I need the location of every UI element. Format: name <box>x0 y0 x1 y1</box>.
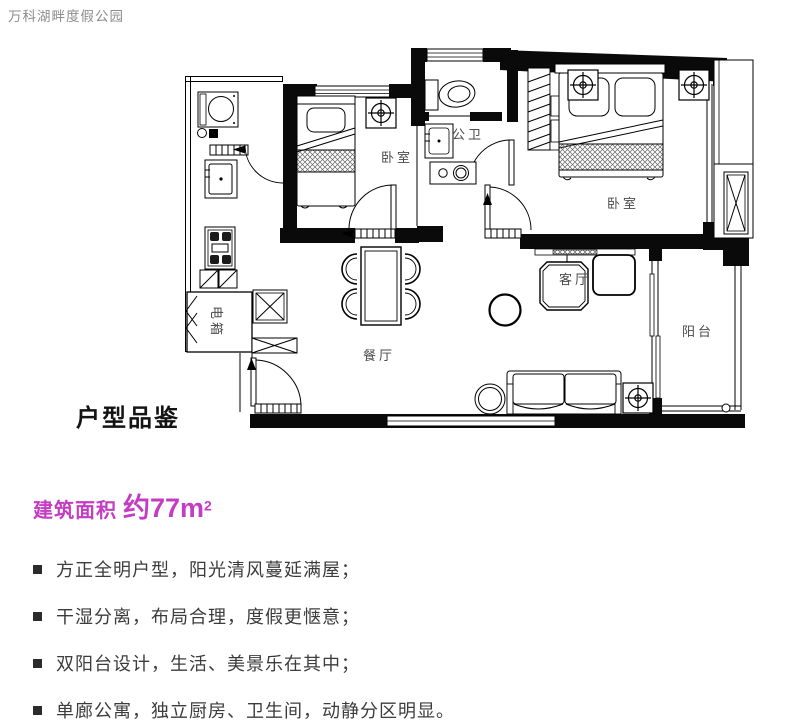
bedside-lamp-icon <box>679 70 709 100</box>
dining-chair-icon <box>342 254 357 284</box>
floor-lamp-icon <box>623 383 653 413</box>
feature-text: 方正全明户型，阳光清风蔓延满屋； <box>56 556 360 582</box>
area-value: 约77m <box>123 493 204 523</box>
stove-icon <box>205 227 235 269</box>
bedroom-right-door-icon <box>483 185 531 238</box>
bathroom-label: 公卫 <box>452 128 484 143</box>
walls <box>186 48 754 428</box>
kitchen-sink-icon <box>205 160 237 198</box>
shelf-icon <box>528 68 560 150</box>
drain-icon <box>722 404 730 412</box>
entry-door-icon <box>247 358 301 413</box>
feature-text: 干湿分离，布局合理，度假更惬意； <box>56 603 360 629</box>
dining-chair-icon <box>342 289 357 319</box>
sofa-icon <box>507 371 621 414</box>
floor-plan: 电箱 <box>185 42 765 432</box>
feature-list: 方正全明户型，阳光清风蔓延满屋； 干湿分离，布局合理，度假更惬意； 双阳台设计，… <box>33 556 455 720</box>
electric-box-label: 电箱 <box>208 306 224 338</box>
feature-item: 单廊公寓，独立厨房、卫生间，动静分区明显。 <box>33 697 455 720</box>
bathroom-washer-icon <box>430 162 476 184</box>
switch-box-icon <box>209 129 218 138</box>
single-bed-icon <box>297 96 355 208</box>
living-room-label: 客厅 <box>559 272 591 288</box>
shaft-icon <box>252 338 297 353</box>
living-room: 客厅 <box>475 255 653 414</box>
bullet-square-icon <box>33 612 42 621</box>
area-superscript: 2 <box>204 498 212 514</box>
building-area: 建筑面积约77m2 <box>33 486 212 525</box>
ac-platform-icon <box>724 172 748 234</box>
bedside-lamp-icon <box>568 70 598 100</box>
section-title: 户型品鉴 <box>76 398 180 433</box>
dining-room: 餐厅 <box>342 247 420 364</box>
stool-icon <box>490 295 521 326</box>
bedroom-right: 卧室 <box>555 64 709 212</box>
toilet-icon <box>425 79 477 110</box>
dining-room-label: 餐厅 <box>363 348 395 364</box>
feature-text: 单廊公寓，独立厨房、卫生间，动静分区明显。 <box>56 697 455 720</box>
feature-item: 双阳台设计，生活、美景乐在其中； <box>33 650 455 676</box>
bathroom: 公卫 <box>425 68 560 184</box>
bullet-square-icon <box>33 706 42 715</box>
bullet-square-icon <box>33 565 42 574</box>
side-table-icon <box>475 384 505 414</box>
bullet-square-icon <box>33 659 42 668</box>
balcony: 阳台 <box>682 325 730 412</box>
page: 万科湖畔度假公园 <box>0 0 800 720</box>
washing-machine-icon <box>198 92 238 127</box>
feature-item: 干湿分离，布局合理，度假更惬意； <box>33 603 455 629</box>
utility: 电箱 <box>186 172 748 353</box>
cabinet-icon <box>200 270 237 288</box>
project-title: 万科湖畔度假公园 <box>8 5 124 25</box>
armchair-icon <box>593 255 635 295</box>
feature-text: 双阳台设计，生活、美景乐在其中； <box>56 650 360 676</box>
dining-chair-icon <box>405 254 420 284</box>
area-label: 建筑面积 <box>33 500 117 522</box>
kitchen <box>198 92 239 288</box>
bedroom-right-label: 卧室 <box>607 196 639 212</box>
feature-item: 方正全明户型，阳光清风蔓延满屋； <box>33 556 455 582</box>
shaft-icon <box>253 290 287 323</box>
dining-table-icon <box>361 247 401 325</box>
bathroom-sink-icon <box>425 124 453 158</box>
bedroom-left-label: 卧室 <box>381 150 413 166</box>
balcony-label: 阳台 <box>682 325 714 340</box>
dining-chair-icon <box>405 289 420 319</box>
bedside-lamp-icon <box>366 98 396 128</box>
electric-box: 电箱 <box>186 292 252 352</box>
floor-drain-icon <box>198 129 207 138</box>
